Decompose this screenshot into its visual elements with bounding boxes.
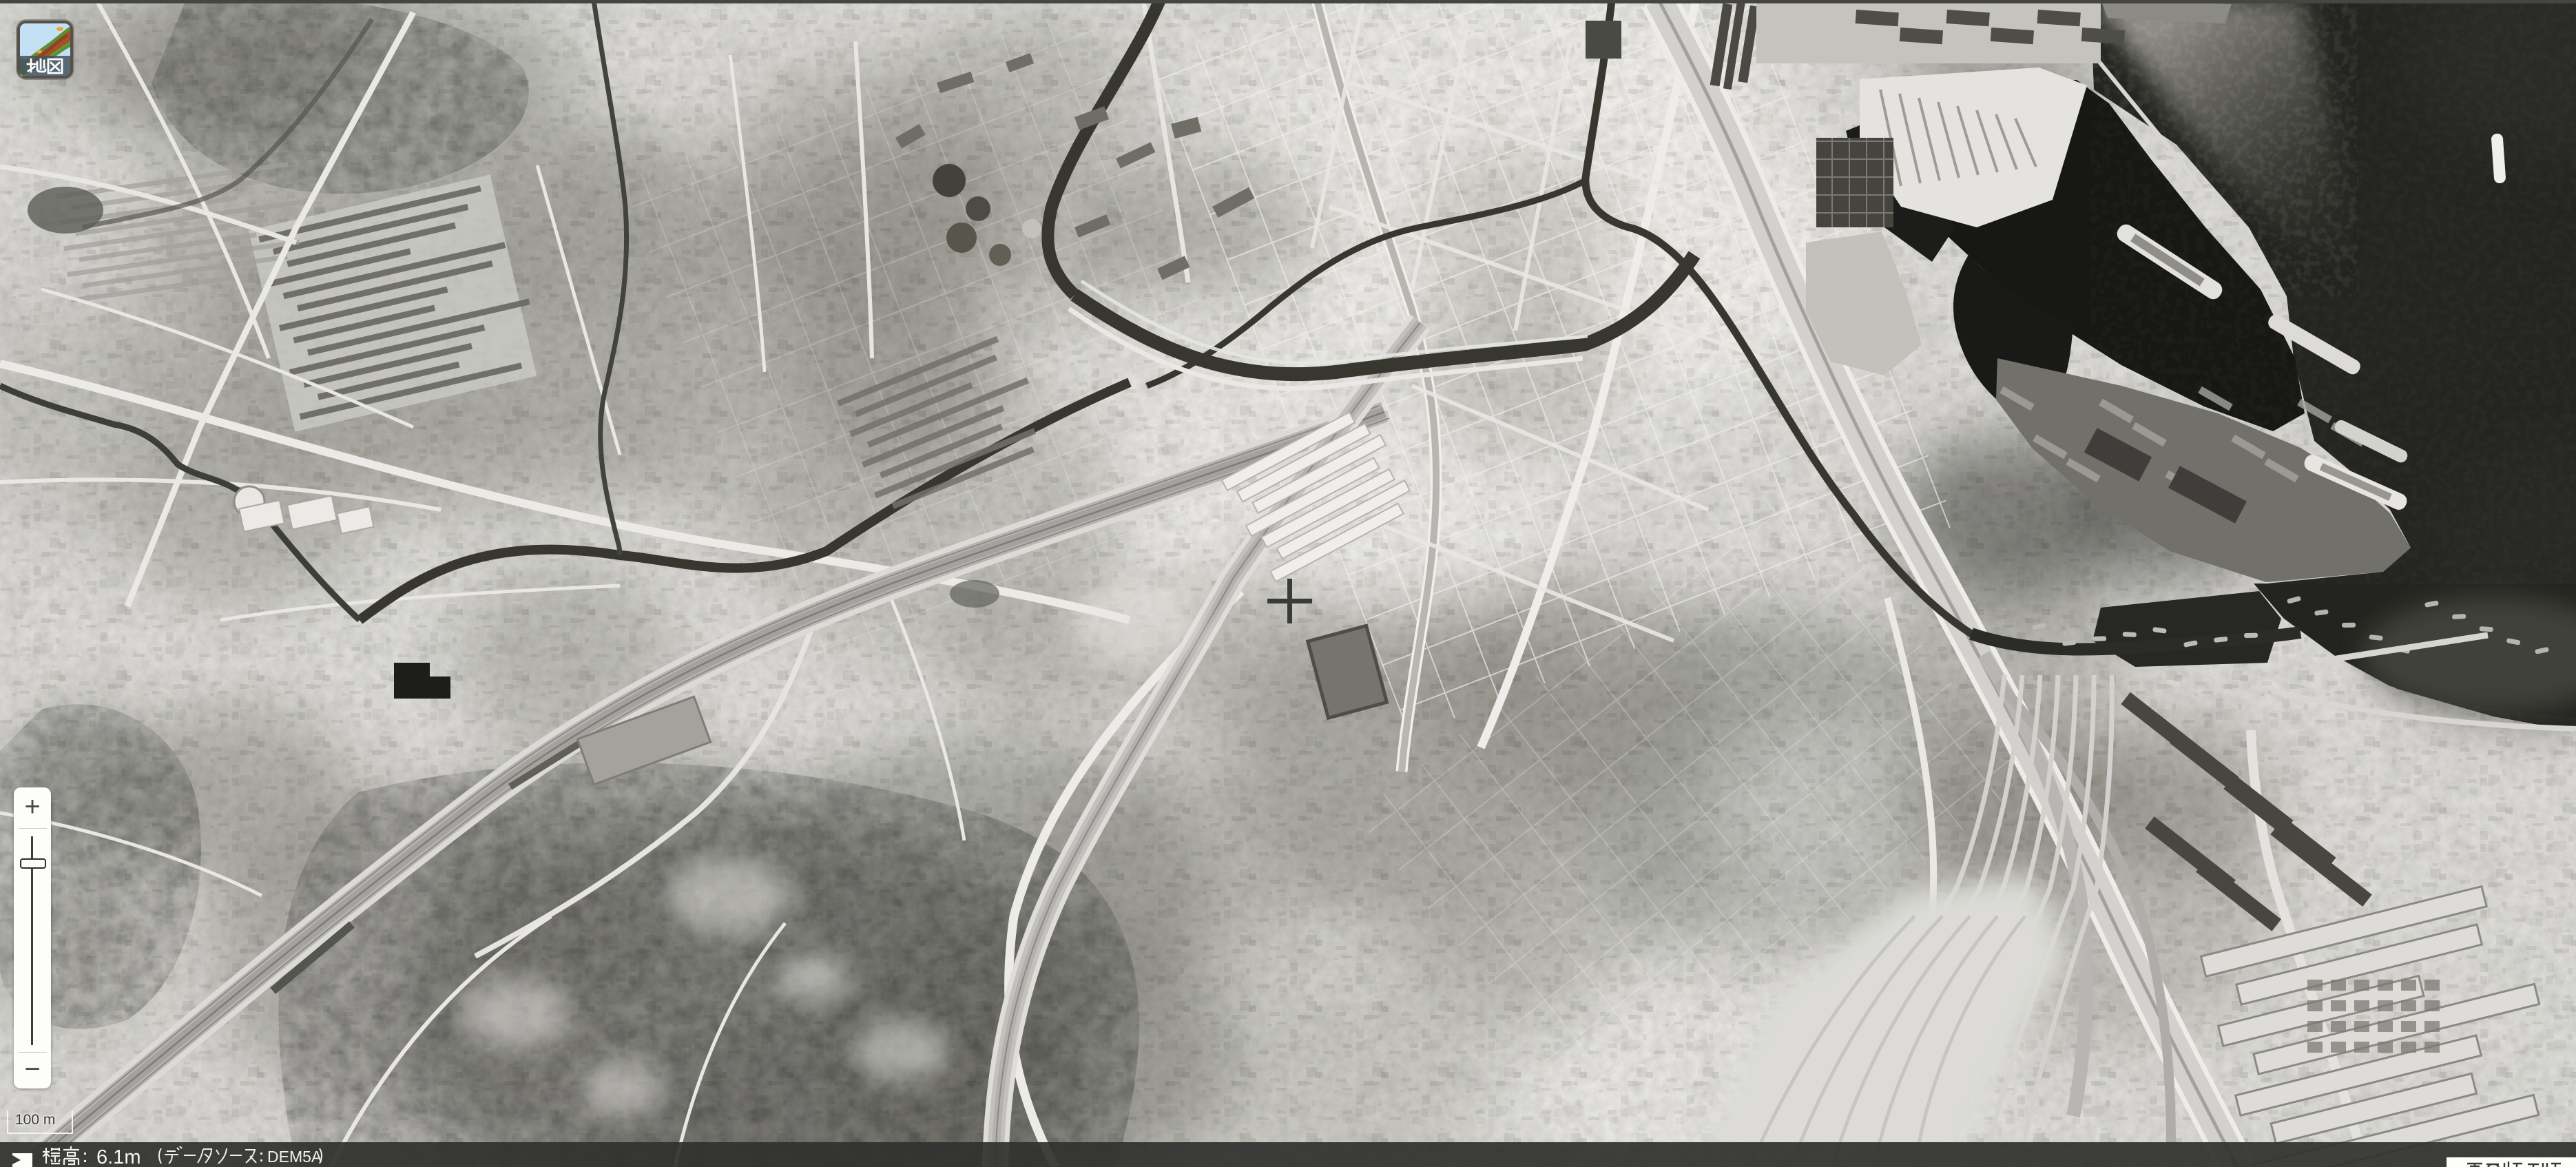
svg-text:6.1m: 6.1m xyxy=(96,1146,141,1166)
svg-text:DEM5A: DEM5A xyxy=(267,1148,322,1166)
